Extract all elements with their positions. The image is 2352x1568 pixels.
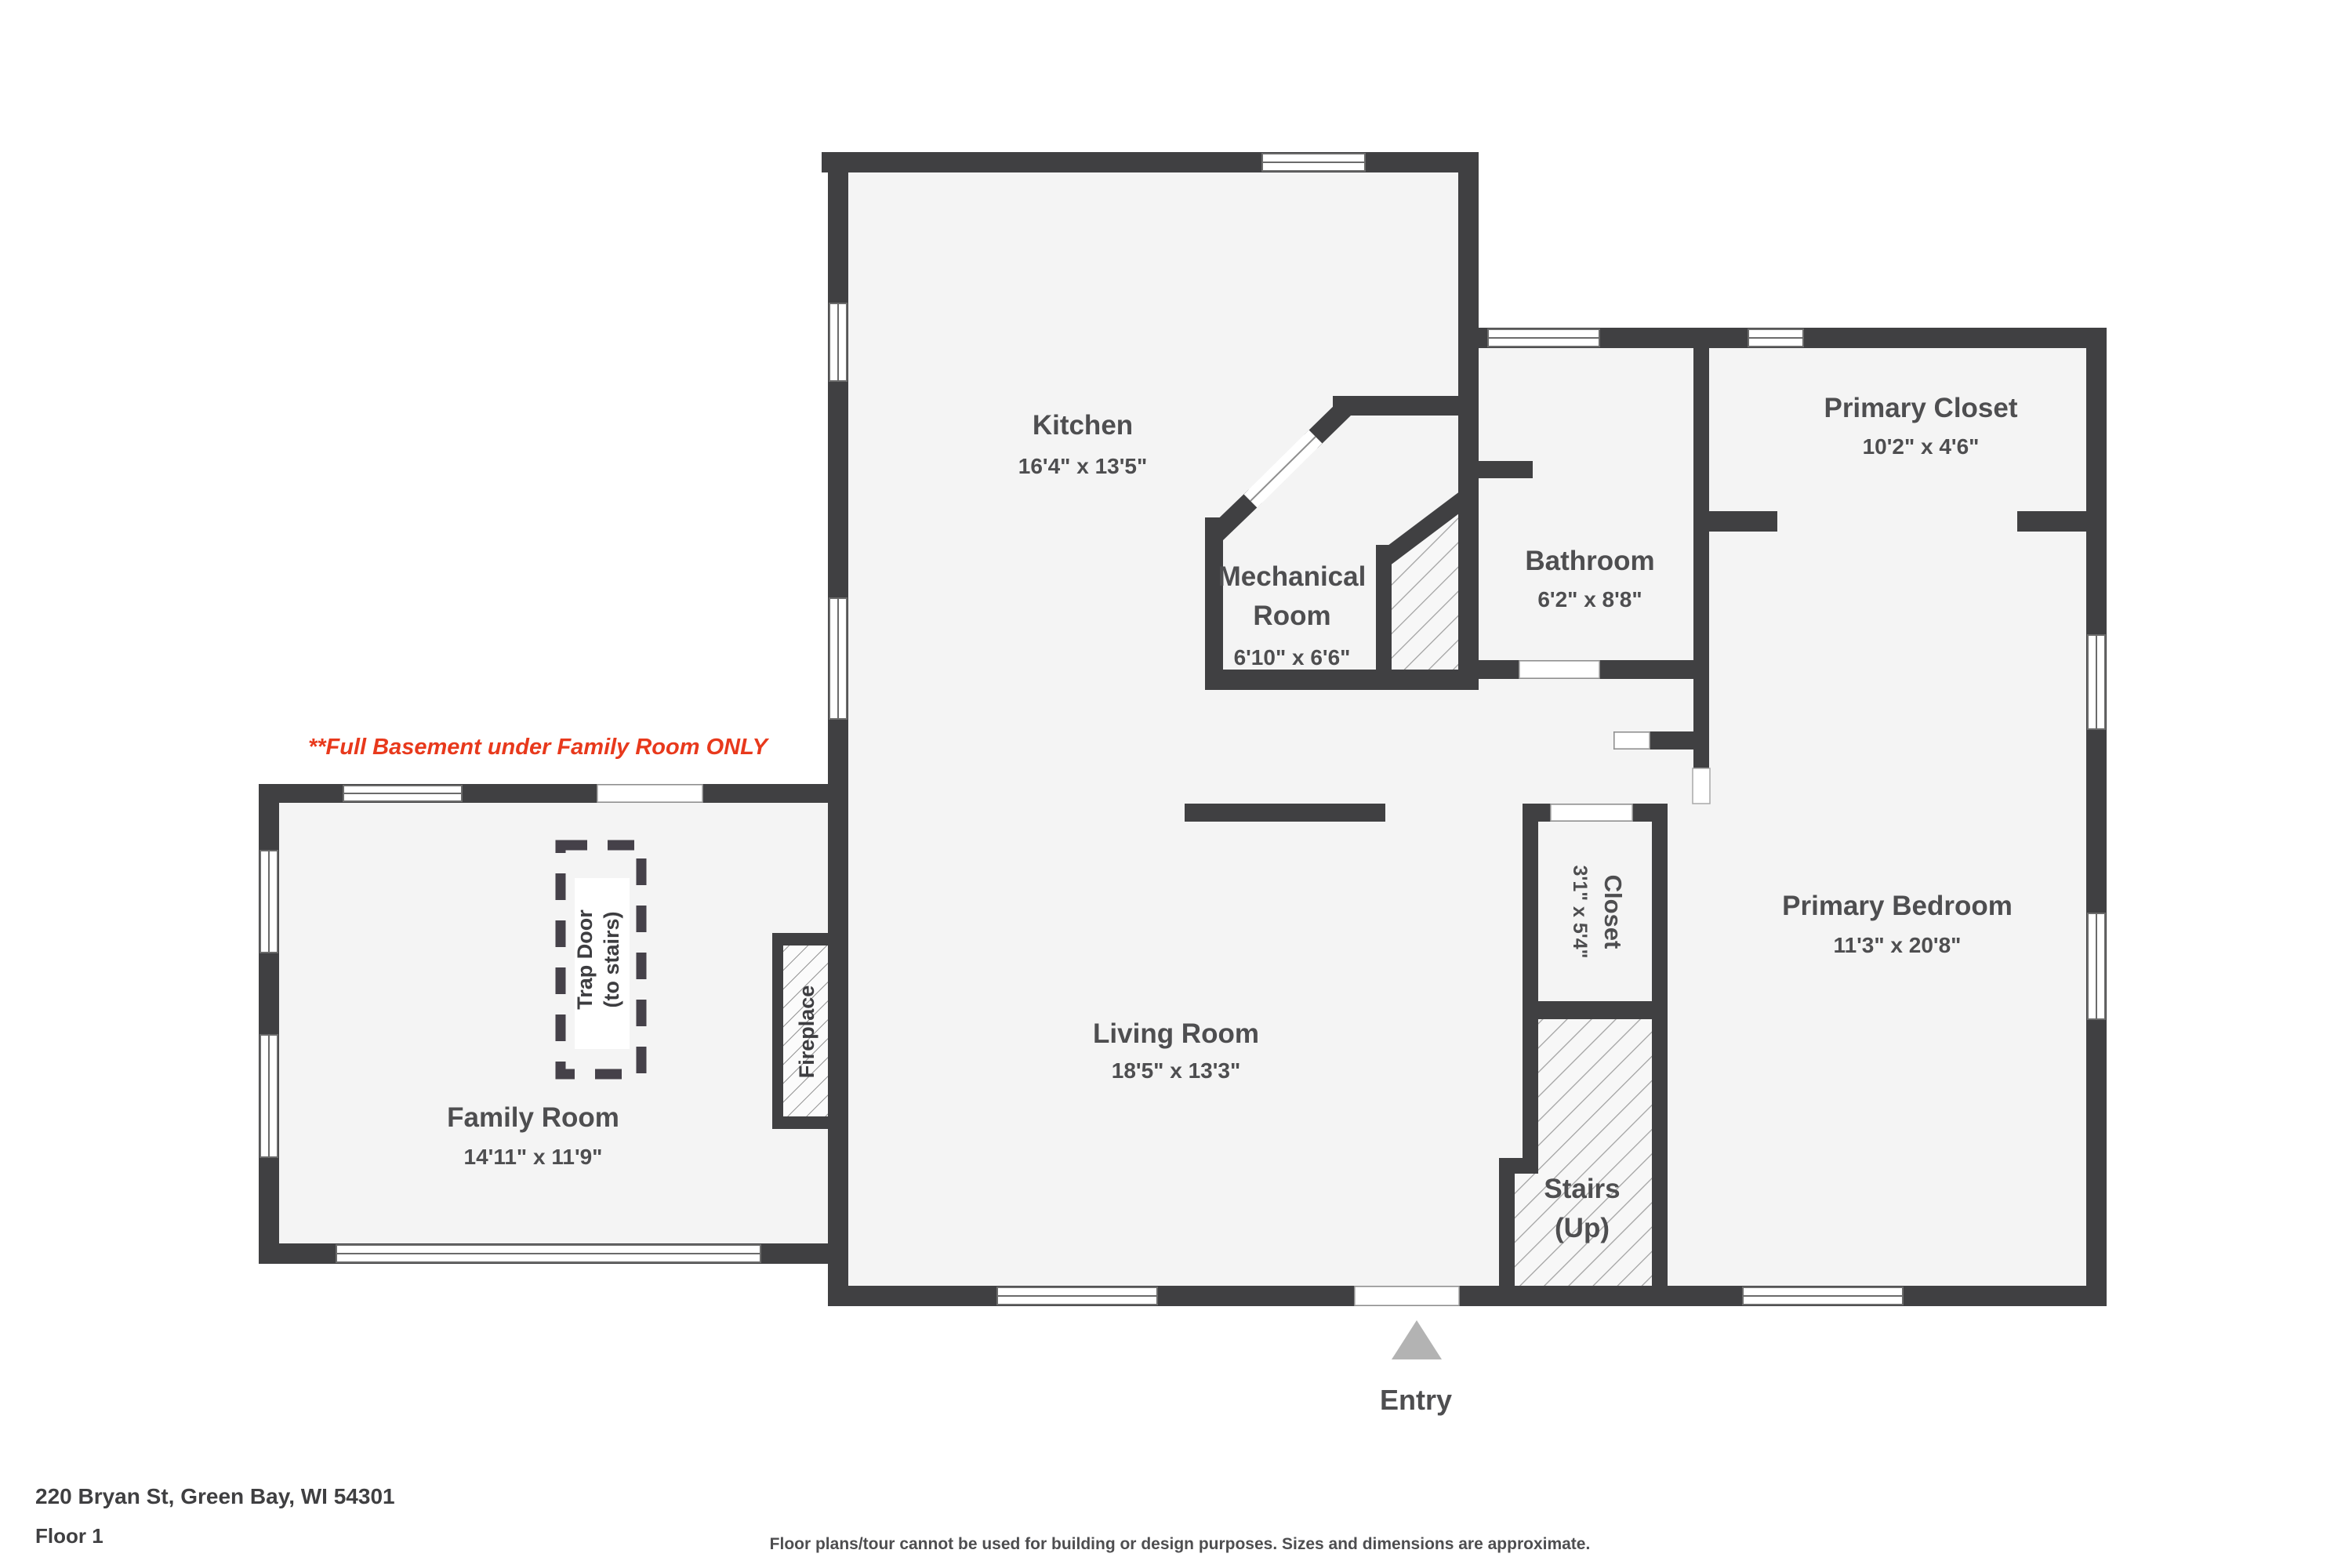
entry-marker: Entry bbox=[1380, 1320, 1452, 1416]
window bbox=[260, 1035, 278, 1157]
footer: 220 Bryan St, Green Bay, WI 54301 Floor … bbox=[35, 1484, 1590, 1553]
mechanical-label2: Room bbox=[1253, 601, 1330, 631]
window bbox=[1748, 329, 1803, 347]
window bbox=[260, 851, 278, 953]
floor-plan: Fireplace Trap Door (to stairs) Entry Ki… bbox=[0, 0, 2352, 1568]
window bbox=[2088, 913, 2105, 1019]
living-room-label: Living Room bbox=[1093, 1018, 1259, 1049]
bathroom-door bbox=[1519, 661, 1599, 678]
window bbox=[1488, 329, 1599, 347]
living-room-dims: 18'5" x 13'3" bbox=[1112, 1058, 1240, 1083]
closet-label: Closet bbox=[1599, 875, 1627, 949]
window bbox=[829, 303, 847, 381]
primary-closet-label: Primary Closet bbox=[1824, 393, 2017, 423]
window bbox=[1262, 154, 1365, 171]
bathroom-label: Bathroom bbox=[1525, 546, 1654, 576]
bathroom-dims: 6'2" x 8'8" bbox=[1537, 587, 1642, 612]
bedroom-door bbox=[1693, 768, 1710, 804]
closet-dims: 3'1" x 5'4" bbox=[1569, 865, 1591, 958]
primary-closet-dims: 10'2" x 4'6" bbox=[1863, 434, 1980, 459]
trap-door-label: Trap Door bbox=[573, 909, 597, 1010]
primary-bedroom-dims: 11'3" x 20'8" bbox=[1834, 933, 1962, 957]
closet-door bbox=[1551, 804, 1632, 821]
family-room-dims: 14'11" x 11'9" bbox=[464, 1145, 603, 1169]
window bbox=[829, 598, 847, 719]
hallway-door bbox=[1614, 732, 1650, 749]
basement-note: **Full Basement under Family Room ONLY bbox=[308, 735, 770, 760]
stairs-label: Stairs bbox=[1544, 1174, 1620, 1204]
floor-label: Floor 1 bbox=[35, 1524, 103, 1548]
window bbox=[1743, 1287, 1903, 1305]
trap-door-label2: (to stairs) bbox=[600, 911, 623, 1007]
stairs-label2: (Up) bbox=[1555, 1213, 1610, 1243]
window bbox=[343, 786, 462, 801]
entry-door bbox=[1355, 1287, 1459, 1305]
window bbox=[336, 1245, 760, 1262]
primary-bedroom-label: Primary Bedroom bbox=[1782, 891, 2013, 921]
entry-arrow-icon bbox=[1392, 1320, 1442, 1359]
family-room-door bbox=[597, 785, 702, 802]
family-room-label: Family Room bbox=[447, 1102, 619, 1133]
disclaimer-text: Floor plans/tour cannot be used for buil… bbox=[770, 1535, 1591, 1553]
kitchen-label: Kitchen bbox=[1033, 410, 1133, 441]
window bbox=[2088, 635, 2105, 729]
fireplace: Fireplace bbox=[772, 933, 839, 1129]
fireplace-label: Fireplace bbox=[795, 985, 818, 1079]
address-text: 220 Bryan St, Green Bay, WI 54301 bbox=[35, 1484, 395, 1508]
kitchen-dims: 16'4" x 13'5" bbox=[1018, 454, 1147, 478]
window bbox=[997, 1287, 1157, 1305]
mechanical-label: Mechanical bbox=[1218, 561, 1367, 592]
mechanical-dims: 6'10" x 6'6" bbox=[1234, 645, 1351, 670]
entry-label: Entry bbox=[1380, 1384, 1452, 1416]
